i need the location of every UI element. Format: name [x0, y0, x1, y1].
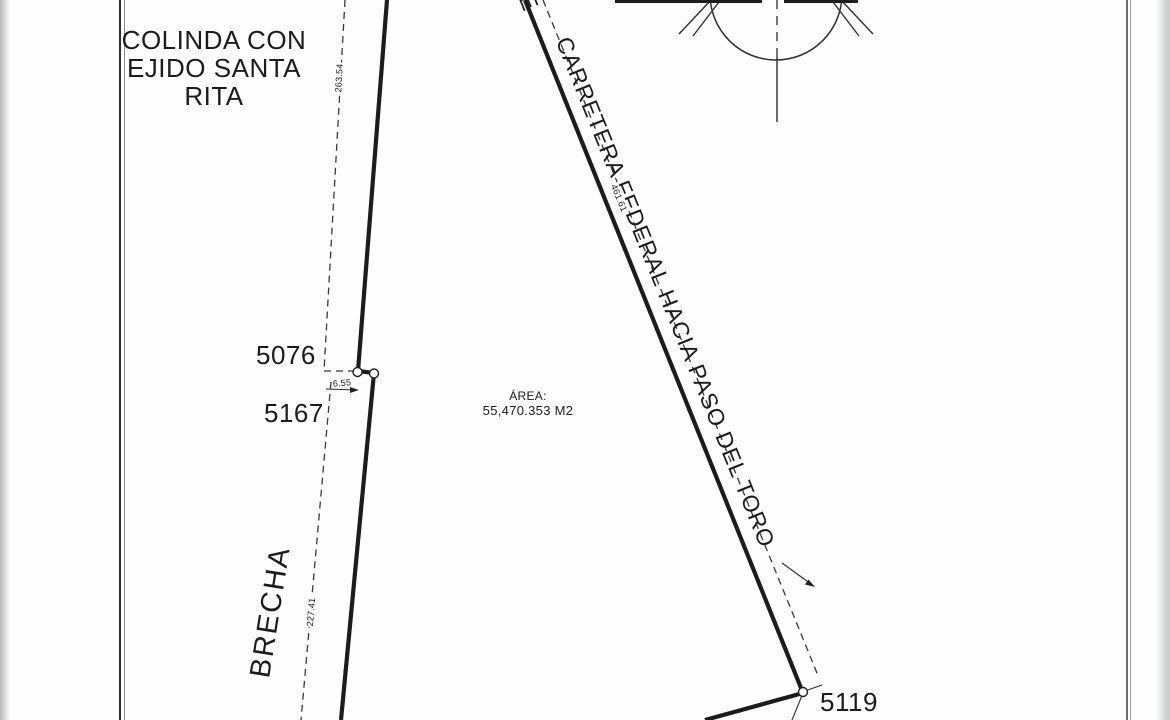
west-boundary-lower	[341, 373, 374, 720]
area-title: ÁREA:	[428, 389, 628, 403]
neighbor-label: COLINDA CON EJIDO SANTA RITA	[100, 26, 328, 110]
dimension-west-upper: 263.54	[333, 62, 345, 93]
property-boundary	[341, 0, 803, 720]
road-boundary	[525, 0, 803, 720]
scanned-survey-plan: COLINDA CON EJIDO SANTA RITA 5076 5167 5…	[0, 0, 1170, 720]
marker-5076	[353, 368, 362, 377]
area-annotation: ÁREA: 55,470.353 M2	[428, 389, 628, 418]
neighbor-label-line2: EJIDO SANTA RITA	[100, 54, 328, 110]
vertex-label-5076: 5076	[256, 340, 316, 371]
vertex-label-5119: 5119	[820, 687, 878, 718]
marker-5119	[799, 688, 808, 697]
vertex-label-5167: 5167	[264, 398, 324, 429]
area-value: 55,470.353 M2	[428, 403, 628, 418]
road-direction-arrow	[782, 563, 811, 584]
north-arrow-icon	[615, 0, 873, 122]
neighbor-label-line1: COLINDA CON	[100, 26, 328, 54]
marker-5167	[370, 369, 379, 378]
dimension-west-jog: 6.55	[331, 377, 352, 389]
west-boundary-upper	[358, 0, 387, 373]
